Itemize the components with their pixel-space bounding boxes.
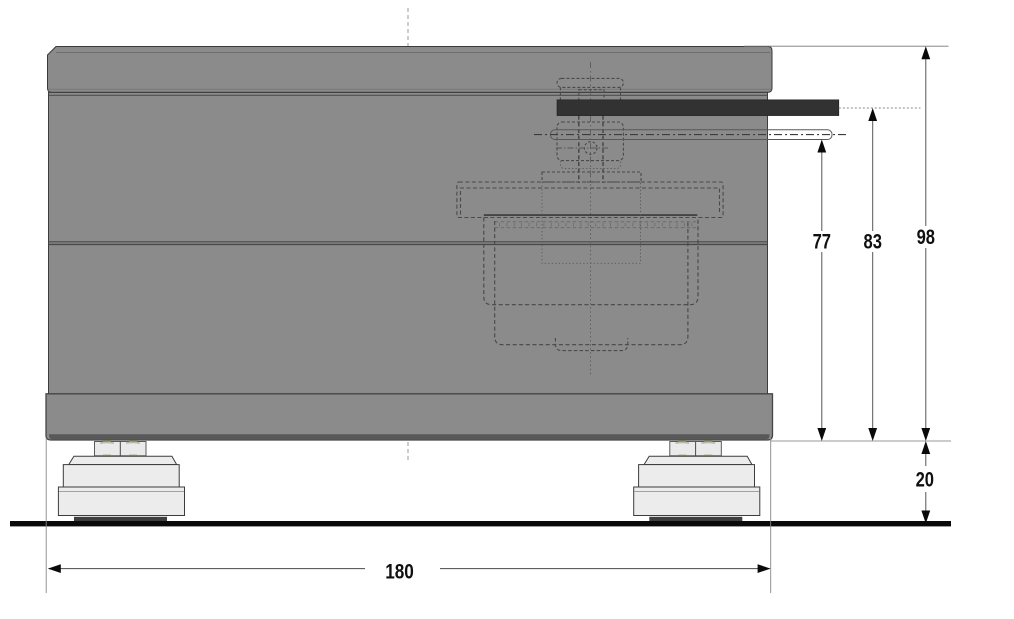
svg-text:77: 77 <box>813 230 831 254</box>
svg-text:98: 98 <box>917 225 935 249</box>
svg-text:83: 83 <box>864 230 882 254</box>
svg-text:20: 20 <box>916 468 934 492</box>
svg-text:180: 180 <box>385 560 414 584</box>
